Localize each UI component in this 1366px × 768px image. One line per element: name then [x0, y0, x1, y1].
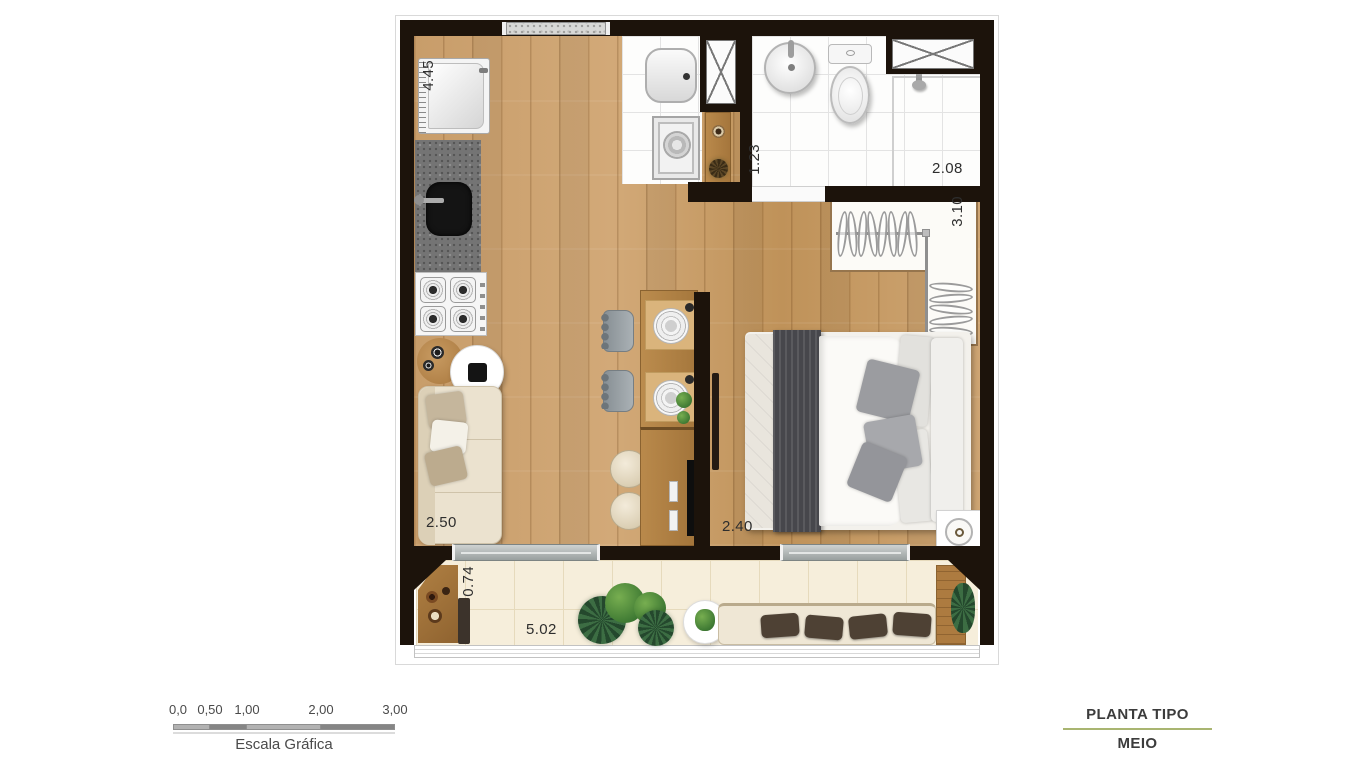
cup-icon — [431, 346, 444, 359]
scale-caption: Escala Gráfica — [235, 736, 333, 753]
shaft-vent-icon — [892, 39, 974, 69]
measure-label: 0.74 — [460, 566, 477, 597]
plate-icon — [653, 308, 689, 344]
shower-head-icon — [912, 80, 926, 90]
tv-rack — [640, 427, 698, 546]
scale-tick: 1,00 — [234, 702, 259, 717]
measure-label: 4.45 — [420, 60, 437, 91]
water-heater-icon — [645, 48, 697, 103]
hangers-row — [838, 210, 924, 258]
legend-subtitle: MEIO — [1063, 735, 1212, 752]
cushion — [804, 614, 844, 640]
scale-tick: 2,00 — [308, 702, 333, 717]
floor-plan: 4.45 1.23 2.08 3.10 2.50 2.40 0.74 5.02 — [400, 20, 994, 660]
bathroom-sink-icon — [764, 42, 816, 94]
scale-tick: 0,50 — [197, 702, 222, 717]
cup-icon — [685, 375, 694, 384]
laundry-shelf — [705, 112, 731, 192]
washing-machine-icon — [652, 116, 700, 180]
speaker-icon — [468, 363, 487, 382]
plant-icon — [695, 609, 715, 631]
plan-legend: PLANTA TIPO MEIO — [1063, 706, 1212, 754]
balcony-bench — [458, 598, 470, 644]
closet-rail — [925, 233, 928, 341]
wall-laundry — [688, 182, 744, 202]
balcony-daybed — [718, 603, 936, 645]
bedroom-door-leaf — [712, 373, 719, 470]
dining-table — [640, 290, 698, 445]
cushion — [760, 613, 800, 639]
scale-segment — [173, 724, 210, 730]
entry-counter — [506, 22, 606, 35]
plant-icon — [709, 159, 728, 178]
scale-segment — [321, 724, 395, 730]
cup-icon — [423, 360, 434, 371]
legend-divider — [1063, 728, 1212, 730]
wall-right — [980, 20, 994, 645]
kitchen-counter — [415, 140, 481, 292]
bed-foot-quilt — [745, 334, 775, 528]
remote-icon — [669, 481, 678, 502]
measure-label: 5.02 — [526, 621, 557, 638]
wall-divider — [694, 292, 710, 546]
measure-label: 2.40 — [722, 518, 753, 535]
bowl-icon — [428, 609, 442, 623]
measure-label: 1.23 — [746, 144, 763, 175]
bottle-icon — [426, 591, 438, 603]
cushion — [892, 612, 932, 638]
scale-tick: 0,0 — [169, 702, 187, 717]
toilet-icon — [828, 44, 872, 64]
pillow — [424, 445, 469, 487]
bed-pillow — [931, 338, 963, 522]
plant-icon — [676, 392, 692, 408]
measure-label: 2.50 — [426, 514, 457, 531]
plant-icon — [638, 610, 674, 646]
scale-bar: 0,0 0,50 1,00 2,00 3,00 Escala Gráfica — [170, 702, 410, 754]
bathroom-door-opening — [744, 186, 825, 202]
bed-runner — [773, 330, 821, 532]
lamp-icon — [945, 518, 973, 546]
page: { "plan": { "measurements": { "kitchen_s… — [0, 0, 1366, 768]
shaft-vent-icon — [706, 40, 736, 104]
kitchen-sink-icon — [426, 182, 472, 236]
cup-icon — [685, 303, 694, 312]
balcony-railing — [414, 645, 980, 658]
stove-icon — [415, 272, 487, 336]
bed — [745, 330, 971, 532]
plant-icon — [951, 583, 975, 633]
dining-chair — [603, 370, 634, 412]
sliding-door — [780, 544, 910, 561]
toilet-bowl-icon — [830, 66, 870, 124]
dining-chair — [603, 310, 634, 352]
scale-tick: 3,00 — [382, 702, 407, 717]
cushion — [848, 613, 888, 640]
measure-label: 2.08 — [932, 160, 963, 177]
scale-segment — [210, 724, 247, 730]
scale-segment — [247, 724, 321, 730]
jar-icon — [712, 125, 725, 138]
remote-icon — [669, 510, 678, 531]
placemat — [645, 300, 695, 350]
wall-left — [400, 20, 414, 645]
sliding-door — [452, 544, 600, 561]
laundry-area — [622, 36, 702, 184]
legend-title: PLANTA TIPO — [1063, 706, 1212, 723]
measure-label: 3.10 — [949, 196, 966, 227]
plant-icon — [677, 411, 690, 424]
